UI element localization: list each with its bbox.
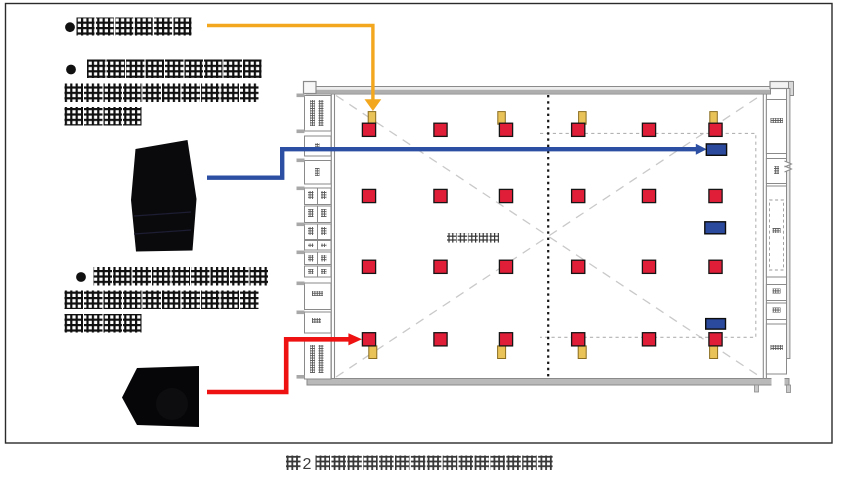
svg-text:2: 2 [303,456,312,473]
